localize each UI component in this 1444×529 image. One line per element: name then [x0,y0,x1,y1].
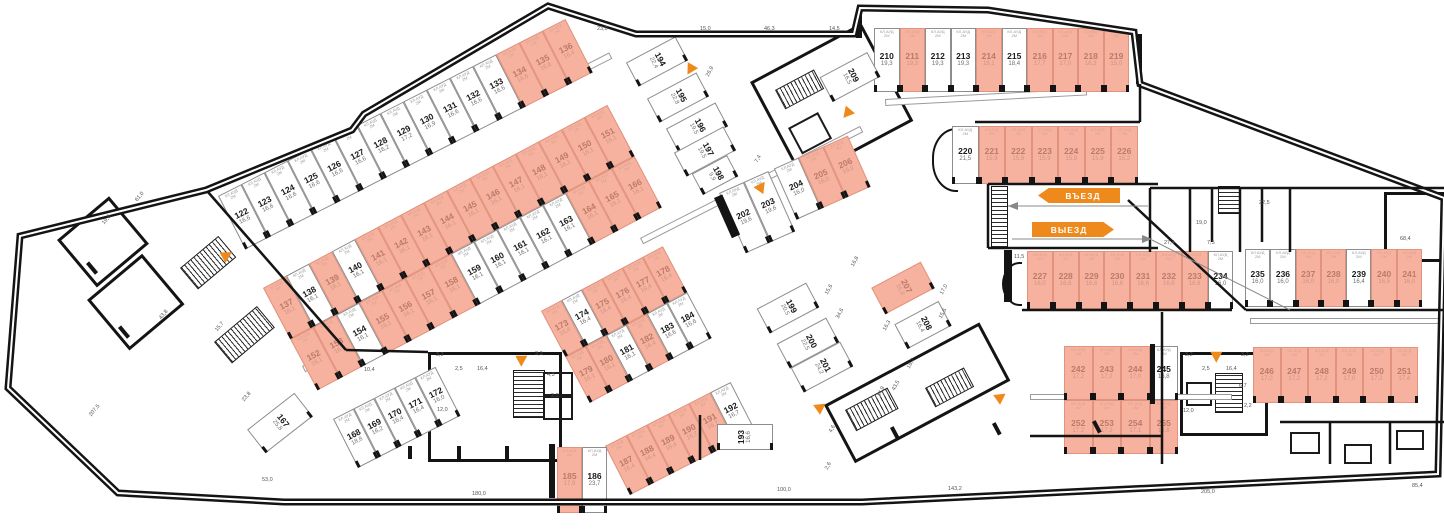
space-number: 213 [956,52,970,61]
unit-tag: КЛ.АУД 2М [289,151,314,170]
space-number: 225 [1091,147,1105,156]
space-area: 17,2 [1072,374,1084,381]
space-number: 210 [880,52,894,61]
parking-space-226[interactable]: КЛ.АУД 2М22615,2 [1111,126,1138,184]
dimension-label: 23,0 [597,26,608,32]
space-area: 16,3 [1085,61,1097,68]
parking-space-225[interactable]: КЛ.АУД 2М22515,9 [1085,126,1112,184]
space-number: 249 [1342,367,1356,376]
space-number: 252 [1071,419,1085,428]
unit-tag: КЛ.АУД 2М [1392,349,1418,358]
parking-space-229[interactable]: КЛ.АУД 2М22916,6 [1079,251,1105,309]
unit-tag: КЛ.АУД 2М [336,127,361,146]
unit-tag: КЛ.АУД 2М [980,128,1005,137]
unit-tag: КЛ.АУД 2М [563,119,588,138]
space-area: 17,2 [1072,428,1084,435]
space-number: 227 [1033,272,1047,281]
dimension-label: 3,2 [436,352,444,358]
unit-tag: КЛ.АУД 2М [396,379,419,396]
space-number: 234 [1213,272,1227,281]
space-number: 217 [1058,52,1072,61]
unit-tag: КЛ.АУД 2М [1271,251,1294,260]
unit-tag: КЛ.АУД 2М [265,278,290,297]
dimension-label: 6,7 [1239,383,1247,389]
dimension-label: 143,2 [948,486,962,492]
space-number: 255 [1157,419,1171,428]
unit-tag: КЛ.АУД 2М [1065,402,1092,411]
dimension-label: 46,3 [764,26,775,32]
unit-tag: КЛ.АУД 2М [403,205,428,224]
space-number: 254 [1128,419,1142,428]
dimension-label: 2,2 [551,393,559,399]
space-number: 253 [1100,419,1114,428]
unit-tag: КЛ.АУД 2М [417,369,440,386]
dimension-label: 26,9 [705,66,715,78]
unit-tag: КЛ.АУД 2М [243,175,268,194]
unit-tag: КЛ.АУД 2М [357,229,382,248]
space-number: 230 [1110,272,1124,281]
unit-tag: КЛ.АУД 2М [1112,128,1137,137]
space-area: 16,5 [1378,279,1390,286]
parking-space-237[interactable]: КЛ.АУД 2М23716,0 [1296,249,1321,307]
space-number: 220 [958,147,972,156]
unit-tag: КЛ.АУД 2М [1246,251,1269,260]
unit-tag: КЛ.АУД 2М [494,156,519,175]
space-area: 19,1 [983,61,995,68]
unit-tag: КЛ.АУД 2М [1086,128,1111,137]
parking-space-222[interactable]: КЛ.АУД 2М22215,9 [1005,126,1032,184]
parking-space-247[interactable]: КЛ.АУД 2М24717,2 [1281,347,1309,403]
unit-tag: КЛ.АУД 2М [1059,128,1084,137]
parking-space-214[interactable]: КЛ.АУД 2М21419,1 [976,28,1002,92]
unit-tag: КЛ.АУД 2М [220,186,245,205]
unit-tag: КЛ.АУД 2М [1080,253,1104,262]
parking-row: КЛ.АУД 2М23516,0КЛ.АУД 2М23616,0КЛ.АУД 2… [1245,249,1422,307]
space-area: 17,3 [1101,428,1113,435]
dimension-label: 15,0 [700,26,711,32]
unit-tag: КЛ.АУД 2М [1157,253,1181,262]
space-number: 228 [1059,272,1073,281]
space-area: 16,8 [1158,374,1170,381]
space-area: 23,7 [589,481,601,488]
space-area: 16,4 [1353,279,1365,286]
unit-tag: КЛ.АУД 2М [953,128,978,137]
unit-tag: КЛ.АУД 2М [1372,251,1395,260]
unit-tag: КЛ.АУД 2М [670,406,693,424]
unit-tag: КЛ.АУД 2М [952,30,976,39]
parking-space-185[interactable]: КЛ.АУД 2М18517,9 [557,447,582,513]
parking-space-236[interactable]: КЛ.АУД 2М23616,0 [1270,249,1295,307]
space-area: 16,6 [1163,281,1175,288]
unit-tag: КЛ.АУД 2М [1209,253,1233,262]
parking-space-224[interactable]: КЛ.АУД 2М22415,9 [1058,126,1085,184]
space-number: 212 [931,52,945,61]
space-area: 16,6 [746,431,753,443]
space-area: 16,0 [1252,279,1264,286]
space-area: 16,6 [1086,281,1098,288]
space-number: 232 [1162,272,1176,281]
direction-arrow-icon [993,389,1009,405]
dimension-label: 7,4 [754,154,763,164]
space-area: 17,0 [1059,61,1071,68]
unit-tag: КЛ.АУД 2М [266,163,291,182]
dimension-label: 2,5 [1202,366,1210,372]
space-number: 218 [1084,52,1098,61]
space-number: 242 [1071,365,1085,374]
dimension-label: 17,0 [939,284,949,296]
dimension-label: 27,4 [1164,240,1175,246]
space-area: 17,1 [1129,428,1141,435]
parking-space-217[interactable]: КЛ.АУД 2М21717,0 [1053,28,1079,92]
dimension-label: 34,6 [835,308,845,320]
dimension-label: 15,6 [824,284,834,296]
parking-space-220[interactable]: КЛ.АУД 2М22021,5 [952,126,979,184]
space-area: 15,2 [1118,156,1130,163]
space-number: 243 [1100,365,1114,374]
unit-tag: КЛ.АУД 2М [711,384,734,402]
unit-tag: КЛ.АУД 2М [1065,348,1092,357]
unit-tag: КЛ.АУД 2М [776,160,802,178]
space-area: 16,6 [1060,281,1072,288]
parking-space-223[interactable]: КЛ.АУД 2М22315,9 [1032,126,1059,184]
parking-space-248[interactable]: КЛ.АУД 2М24817,2 [1308,347,1336,403]
space-area: 16,0 [1215,281,1227,288]
parking-space-255[interactable]: КЛ.АУД 2М25516,8 [1150,400,1179,454]
unit-tag: КЛ.АУД 2М [1054,30,1078,39]
parking-space-241[interactable]: КЛ.АУД 2М24116,0 [1397,249,1422,307]
space-number: 219 [1109,52,1123,61]
unit-tag: КЛ.АУД 2М [691,395,714,413]
space-area: 16,0 [1328,279,1340,286]
space-number: 241 [1402,270,1416,279]
dimension-label: 16,4 [1226,366,1237,372]
unit-tag: КЛ.АУД 2М [540,132,565,151]
parking-space-242[interactable]: КЛ.АУД 2М24217,2 [1064,346,1093,400]
space-number: 224 [1064,147,1078,156]
space-area: 15,9 [1065,156,1077,163]
space-area: 19,3 [957,61,969,68]
space-area: 16,6 [1189,281,1201,288]
space-area: 17,2 [1288,376,1300,383]
parking-space-238[interactable]: КЛ.АУД 2М23816,0 [1321,249,1346,307]
unit-tag: КЛ.АУД 2М [926,30,950,39]
unit-tag: КЛ.АУД 2М [607,438,630,456]
space-number: 226 [1117,147,1131,156]
parking-space-243[interactable]: КЛ.АУД 2М24317,2 [1093,346,1122,400]
parking-space-232[interactable]: КЛ.АУД 2М23216,6 [1156,251,1182,309]
parking-space-233[interactable]: КЛ.АУД 2М23316,6 [1182,251,1208,309]
unit-tag: КЛ.АУД 2М [311,254,336,273]
parking-space-240[interactable]: КЛ.АУД 2М24016,5 [1371,249,1396,307]
unit-tag: КЛ.АУД 2М [288,266,313,285]
exit-sign: ВЫЕЗД [1032,222,1114,237]
unit-tag: КЛ.АУД 2М [901,30,925,39]
parking-space-221[interactable]: КЛ.АУД 2М22115,9 [979,126,1006,184]
unit-tag: КЛ.АУД 2М [558,449,581,458]
parking-floor-plan: ВЪЕЗД ВЫЕЗД КЛ.АУД 2М12216,6КЛ.АУД 2М123… [0,0,1444,529]
dimension-label: 3,2 [1241,352,1249,358]
space-number: 240 [1377,270,1391,279]
unit-tag: КЛ.АУД 2М [1006,128,1031,137]
parking-space-216[interactable]: КЛ.АУД 2М21617,7 [1027,28,1053,92]
space-area: 17,4 [1398,376,1410,383]
parking-space-244[interactable]: КЛ.АУД 2М24417,0 [1121,346,1150,400]
parking-space-250[interactable]: КЛ.АУД 2М25017,3 [1363,347,1391,403]
space-area: 19,3 [906,61,918,68]
dimension-label: 10,4 [364,367,375,373]
unit-tag: КЛ.АУД 2М [517,144,542,163]
parking-row: КЛ.АУД 2М22021,5КЛ.АУД 2М22115,9КЛ.АУД 2… [952,126,1138,184]
space-area: 17,0 [1261,376,1273,383]
parking-space-252[interactable]: КЛ.АУД 2М25217,2 [1064,400,1093,454]
unit-tag: КЛ.АУД 2М [586,107,611,126]
space-number: 235 [1251,270,1265,279]
unit-tag: КЛ.АУД 2М [644,248,667,266]
space-number: 221 [985,147,999,156]
unit-tag: КЛ.АУД 2М [471,168,496,187]
unit-tag: КЛ.АУД 2М [977,30,1001,39]
space-number: 244 [1128,365,1142,374]
unit-tag: КЛ.АУД 2М [1347,251,1370,260]
parking-space-249[interactable]: КЛ.АУД 2М24917,0 [1336,347,1364,403]
unit-tag: КЛ.АУД 2М [448,180,473,199]
dimension-label: 2,5 [455,366,463,372]
space-area: 16,6 [1111,281,1123,288]
unit-tag: КЛ.АУД 2М [426,193,451,212]
unit-tag: КЛ.АУД 2М [649,416,672,434]
space-area: 15,9 [1012,156,1024,163]
dimension-label: 100,0 [777,487,791,493]
space-number: 245 [1157,365,1171,374]
parking-space-213[interactable]: КЛ.АУД 2М21319,3 [951,28,977,92]
parking-space-251[interactable]: КЛ.АУД 2М25117,4 [1391,347,1419,403]
space-area: 17,2 [1316,376,1328,383]
unit-tag: КЛ.АУД 2М [543,302,566,320]
unit-tag: КЛ.АУД 2М [583,449,606,458]
dimension-label: 3,2 [1185,352,1193,358]
parking-space-211[interactable]: КЛ.АУД 2М21119,3 [900,28,926,92]
space-number: 185 [562,472,576,481]
space-number: 229 [1084,272,1098,281]
dimension-label: 16,4 [477,366,488,372]
dimension-label: 16,3 [882,320,892,332]
unit-tag: КЛ.АУД 2М [1122,402,1149,411]
unit-tag: КЛ.АУД 2М [544,21,569,40]
unit-tag: КЛ.АУД 2М [521,33,546,52]
parking-space-239[interactable]: КЛ.АУД 2М23916,4 [1346,249,1371,307]
dimension-label: 12,0 [437,407,448,413]
parking-space-231[interactable]: КЛ.АУД 2М23116,6 [1130,251,1156,309]
parking-row: КЛ.АУД 2М18517,9КЛ.АУД 2М18623,7 [557,447,607,513]
dimension-label: 12,0 [1183,408,1194,414]
dimension-label: 16,8 [850,256,860,268]
dimension-label: 2,6 [824,461,833,471]
space-number: 233 [1188,272,1202,281]
unit-tag: КЛ.АУД 2М [428,80,453,99]
space-number: 250 [1370,367,1384,376]
unit-tag: КЛ.АУД 2М [1028,253,1052,262]
space-number: 246 [1260,367,1274,376]
dimension-label: 68,4 [1400,236,1411,242]
parking-space-234[interactable]: КЛ.АУД 2М23416,0 [1208,251,1234,309]
dimension-label: 7,5 [1207,240,1215,246]
parking-space-194[interactable]: 19422,4 [626,36,688,86]
space-area: 18,4 [1008,61,1020,68]
unit-tag: КЛ.АУД 2М [624,259,647,277]
space-area: 15,9 [1039,156,1051,163]
unit-tag: КЛ.АУД 2М [1105,253,1129,262]
space-area: 17,2 [1101,374,1113,381]
parking-row: КЛ.АУД 2М24617,0КЛ.АУД 2М24717,2КЛ.АУД 2… [1253,347,1418,403]
space-number: 238 [1326,270,1340,279]
direction-arrow-icon [1210,352,1222,363]
parking-space-210[interactable]: КЛ.АУД 2М21019,3 [874,28,900,92]
parking-space-235[interactable]: КЛ.АУД 2М23516,0 [1245,249,1270,307]
parking-space-219[interactable]: КЛ.АУД 2М21915,0 [1104,28,1130,92]
dimension-label: 4,3 [547,372,555,378]
unit-tag: КЛ.АУД 2М [335,411,358,428]
space-area: 19,3 [932,61,944,68]
dimension-label: 14,5 [829,26,840,32]
unit-tag: КЛ.АУД 2М [334,241,359,260]
unit-tag: КЛ.АУД 2М [451,68,476,87]
parking-row: КЛ.АУД 2М24217,2КЛ.АУД 2М24317,2КЛ.АУД 2… [1064,346,1178,454]
unit-tag: КЛ.АУД 2М [359,116,384,135]
space-number: 222 [1011,147,1025,156]
space-number: 239 [1352,270,1366,279]
unit-tag: КЛ.АУД 2М [1033,128,1058,137]
unit-tag: КЛ.АУД 2М [312,139,337,158]
space-area: 15,9 [986,156,998,163]
unit-tag: КЛ.АУД 2М [382,104,407,123]
unit-tag: КЛ.АУД 2М [1122,348,1149,357]
space-number: 251 [1397,367,1411,376]
space-area: 17,3 [1371,376,1383,383]
unit-tag: КЛ.АУД 2М [1028,30,1052,39]
parking-space-167[interactable]: 16725,8 [247,393,313,454]
parking-row: КЛ.АУД 2М22716,0КЛ.АУД 2М22816,6КЛ.АУД 2… [1027,251,1233,309]
unit-tag: КЛ.АУД 2М [1309,349,1335,358]
dimension-label: 53,0 [262,477,273,483]
space-area: 19,3 [881,61,893,68]
unit-tag: КЛ.АУД 2М [405,92,430,111]
dimension-label: 15,7 [214,321,225,333]
unit-tag: КЛ.АУД 2М [1337,349,1363,358]
space-area: 17,7 [1034,61,1046,68]
dimension-label: 3,3 [535,351,543,357]
dimension-label: 205,0 [1201,489,1215,495]
direction-arrow-icon [813,399,829,415]
parking-space-193[interactable]: 19316,6 [717,424,773,450]
parking-space-218[interactable]: КЛ.АУД 2М21816,3 [1078,28,1104,92]
unit-tag: КЛ.АУД 2М [1254,349,1280,358]
dimension-label: 4,6 [828,424,837,434]
unit-tag: КЛ.АУД 2М [1079,30,1103,39]
dimension-label: 11,5 [1014,254,1024,260]
space-area: 21,5 [959,156,971,163]
space-area: 15,9 [1092,156,1104,163]
space-number: 248 [1315,367,1329,376]
unit-tag: КЛ.АУД 2М [1322,251,1345,260]
space-area: 15,0 [1110,61,1122,68]
unit-tag: КЛ.АУД 2М [1398,251,1421,260]
entrance-sign: ВЪЕЗД [1038,188,1120,203]
parking-space-230[interactable]: КЛ.АУД 2М23016,6 [1104,251,1130,309]
parking-space-254[interactable]: КЛ.АУД 2М25417,1 [1121,400,1150,454]
space-area: 16,0 [1302,279,1314,286]
parking-space-246[interactable]: КЛ.АУД 2М24617,0 [1253,347,1281,403]
parking-space-215[interactable]: КЛ.АУД 2М21518,4 [1002,28,1028,92]
unit-tag: КЛ.АУД 2М [1105,30,1129,39]
direction-arrow-icon [515,356,527,367]
space-number: 237 [1301,270,1315,279]
unit-tag: КЛ.АУД 2М [376,390,399,407]
unit-tag: КЛ.АУД 2М [1364,349,1390,358]
unit-tag: КЛ.АУД 2М [1003,30,1027,39]
space-area: 16,0 [1034,281,1046,288]
dimension-label: 23,8 [241,391,252,403]
space-number: 223 [1038,147,1052,156]
unit-tag: КЛ.АУД 2М [1297,251,1320,260]
unit-tag: КЛ.АУД 2М [1131,253,1155,262]
unit-tag: КЛ.АУД 2М [604,270,627,288]
unit-tag: КЛ.АУД 2М [498,45,523,64]
unit-tag: КЛ.АУД 2М [355,400,378,417]
parking-row: КЛ.АУД 2М21019,3КЛ.АУД 2М21119,3КЛ.АУД 2… [874,28,1129,92]
unit-tag: КЛ.АУД 2М [1054,253,1078,262]
dimension-label: 2,2 [1244,403,1252,409]
unit-tag: КЛ.АУД 2М [583,281,606,299]
space-number: 186 [587,472,601,481]
space-number: 231 [1136,272,1150,281]
space-number: 215 [1007,52,1021,61]
parking-space-186[interactable]: КЛ.АУД 2М18623,7 [582,447,607,513]
unit-tag: КЛ.АУД 2М [875,30,899,39]
dimension-label: 19,0 [1196,220,1207,226]
dimension-label: 180,0 [472,491,486,497]
unit-tag: КЛ.АУД 2М [563,292,586,310]
unit-tag: КЛ.АУД 2М [475,57,500,76]
space-area: 16,6 [1137,281,1149,288]
unit-tag: КЛ.АУД 2М [380,217,405,236]
space-number: 236 [1276,270,1290,279]
parking-space-227[interactable]: КЛ.АУД 2М22716,0 [1027,251,1053,309]
space-area: 16,0 [1404,279,1416,286]
dimension-label: 207,5 [88,403,101,417]
space-number: 216 [1033,52,1047,61]
space-area: 16,0 [1277,279,1289,286]
unit-tag: КЛ.АУД 2М [1094,348,1121,357]
unit-tag: КЛ.АУД 2М [1183,253,1207,262]
space-area: 17,0 [1129,374,1141,381]
space-number: 211 [905,52,919,61]
parking-space-228[interactable]: КЛ.АУД 2М22816,6 [1053,251,1079,309]
unit-tag: КЛ.АУД 2М [628,427,651,445]
space-number: 247 [1287,367,1301,376]
space-number: 214 [982,52,996,61]
parking-space-212[interactable]: КЛ.АУД 2М21219,3 [925,28,951,92]
unit-tag: КЛ.АУД 2М [1094,402,1121,411]
space-number: 193 [737,430,746,444]
dimension-label: 61,0 [134,191,145,203]
space-area: 17,9 [564,481,576,488]
unit-tag: КЛ.АУД 2М [1282,349,1308,358]
dimension-label: 85,4 [1412,483,1423,489]
space-area: 17,0 [1343,376,1355,383]
dimension-label: 22,5 [1259,200,1270,206]
space-area: 16,8 [1158,428,1170,435]
